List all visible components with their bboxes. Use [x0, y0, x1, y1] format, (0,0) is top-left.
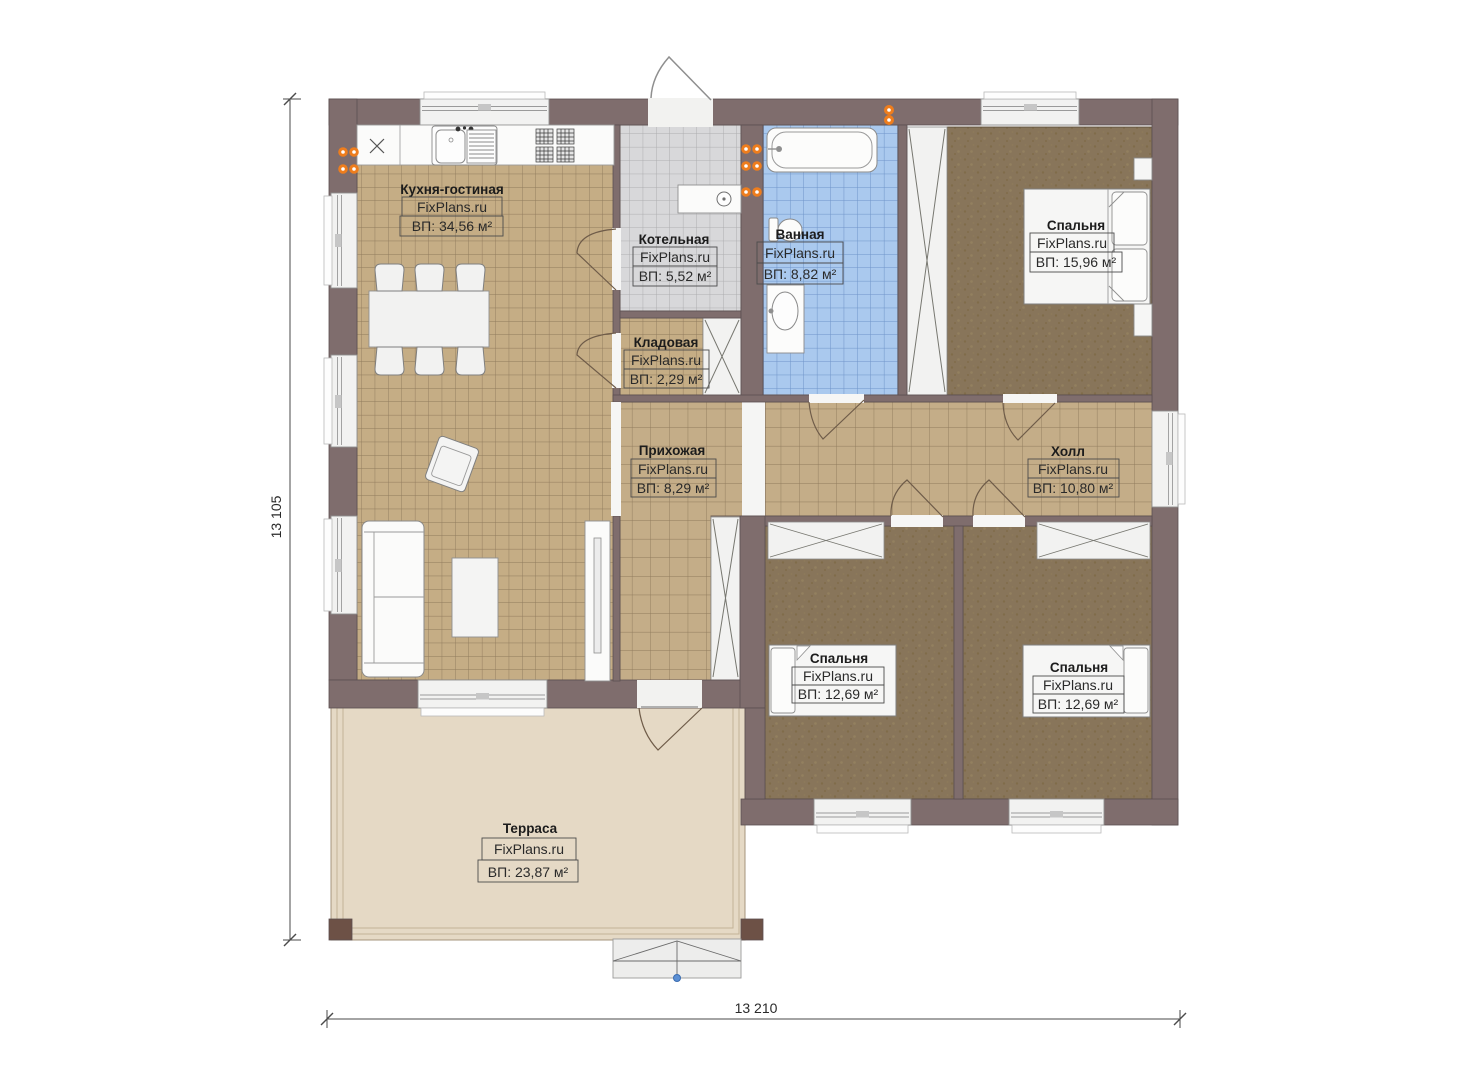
svg-text:Кухня-гостиная: Кухня-гостиная	[400, 182, 503, 197]
svg-text:FixPlans.ru: FixPlans.ru	[631, 352, 701, 368]
svg-text:ВП: 23,87 м²: ВП: 23,87 м²	[488, 864, 569, 880]
svg-text:13 105: 13 105	[268, 495, 284, 538]
svg-text:Спальня: Спальня	[1047, 218, 1105, 233]
svg-text:ВП: 2,29 м²: ВП: 2,29 м²	[630, 371, 703, 387]
svg-text:FixPlans.ru: FixPlans.ru	[1038, 461, 1108, 477]
svg-text:FixPlans.ru: FixPlans.ru	[494, 841, 564, 857]
svg-text:ВП: 10,80 м²: ВП: 10,80 м²	[1033, 480, 1114, 496]
svg-text:Кладовая: Кладовая	[634, 335, 699, 350]
svg-text:Ванная: Ванная	[776, 227, 825, 242]
svg-text:FixPlans.ru: FixPlans.ru	[1037, 235, 1107, 251]
svg-text:ВП: 15,96 м²: ВП: 15,96 м²	[1036, 254, 1117, 270]
svg-text:Холл: Холл	[1051, 444, 1085, 459]
svg-text:ВП: 34,56 м²: ВП: 34,56 м²	[412, 218, 493, 234]
svg-text:13 210: 13 210	[735, 1000, 778, 1016]
svg-text:Прихожая: Прихожая	[639, 443, 706, 458]
svg-text:ВП: 12,69 м²: ВП: 12,69 м²	[1038, 696, 1119, 712]
svg-text:ВП: 5,52 м²: ВП: 5,52 м²	[639, 268, 712, 284]
svg-text:ВП: 8,29 м²: ВП: 8,29 м²	[637, 480, 710, 496]
svg-text:FixPlans.ru: FixPlans.ru	[640, 249, 710, 265]
svg-text:FixPlans.ru: FixPlans.ru	[765, 245, 835, 261]
svg-text:FixPlans.ru: FixPlans.ru	[417, 199, 487, 215]
svg-text:Спальня: Спальня	[1050, 660, 1108, 675]
svg-text:Терраса: Терраса	[503, 821, 558, 836]
svg-text:ВП: 12,69 м²: ВП: 12,69 м²	[798, 686, 879, 702]
svg-text:Спальня: Спальня	[810, 651, 868, 666]
svg-text:FixPlans.ru: FixPlans.ru	[803, 668, 873, 684]
svg-text:FixPlans.ru: FixPlans.ru	[1043, 677, 1113, 693]
svg-text:FixPlans.ru: FixPlans.ru	[638, 461, 708, 477]
svg-text:Котельная: Котельная	[639, 232, 710, 247]
svg-text:ВП: 8,82 м²: ВП: 8,82 м²	[764, 266, 837, 282]
